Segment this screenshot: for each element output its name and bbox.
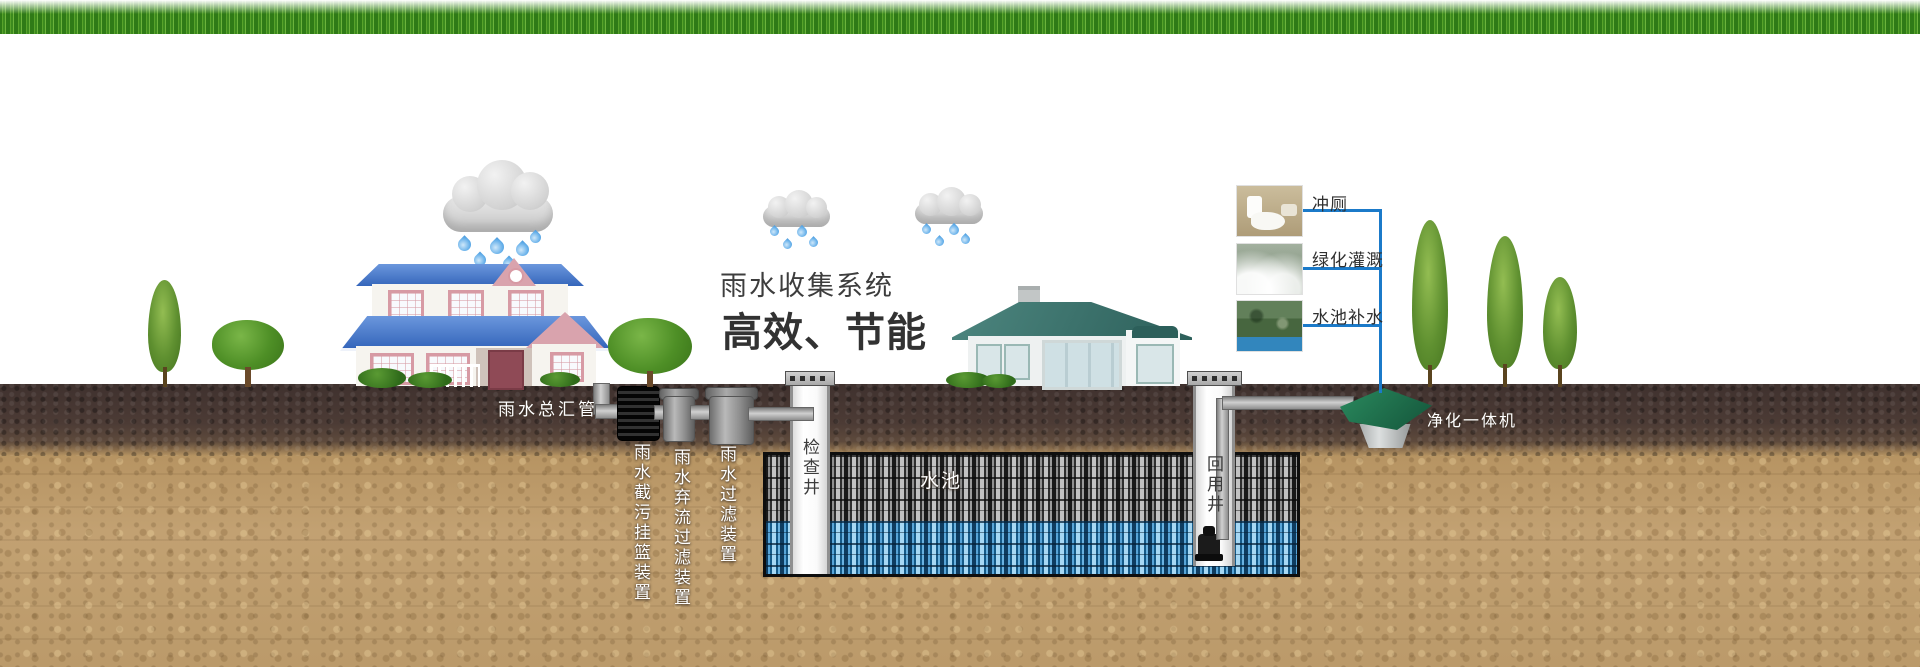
use-label-irrigation: 绿化灌溉 (1312, 246, 1384, 271)
poplar-tree (1412, 220, 1448, 387)
diversion-filter-label: 雨水弃流过滤装置 (668, 448, 693, 608)
bay-awning (1132, 326, 1178, 338)
reuse-well-label: 回用井 (1201, 455, 1226, 515)
grass-strip (0, 0, 1920, 34)
raindrop (959, 233, 972, 246)
intercept-basket-label: 雨水截污挂篮装置 (628, 443, 653, 603)
rainwater-collection-diagram: 雨水收集系统 高效、节能 检查井 水池 回用井 净化一体机 雨水总汇管 雨水截污… (0, 0, 1920, 667)
bush (540, 372, 580, 387)
raindrop (768, 225, 781, 238)
main-pipe-label: 雨水总汇管 (498, 395, 598, 420)
toilet-photo (1236, 185, 1303, 237)
inspection-well-label: 检查井 (797, 438, 822, 498)
raindrop (487, 237, 507, 257)
bush (982, 374, 1016, 388)
use-label-pond: 水池补水 (1312, 303, 1384, 328)
bush (358, 368, 406, 388)
soil-dark-layer (0, 384, 1920, 456)
use-label-toilet: 冲厕 (1312, 190, 1348, 215)
storage-tank-label: 水池 (920, 466, 962, 493)
pipe-to-purifier (1222, 396, 1354, 410)
purifier-label: 净化一体机 (1427, 407, 1517, 431)
front-door (488, 350, 524, 390)
raindrop (933, 235, 946, 248)
round-tree (212, 320, 284, 387)
pipe-to-inspection-well (748, 407, 814, 421)
poplar-tree (148, 280, 181, 387)
system-subtitle: 高效、节能 (722, 300, 982, 358)
raindrop (807, 236, 820, 249)
glass-doors (1042, 340, 1122, 390)
poplar-tree (1543, 277, 1577, 387)
round-tree (608, 318, 692, 387)
raindrop (781, 238, 794, 251)
raindrop (528, 230, 544, 246)
pond-photo (1236, 300, 1303, 352)
raindrop (795, 225, 809, 239)
irrigation-photo (1236, 243, 1303, 295)
raindrop (513, 240, 531, 258)
connector-line-vertical (1379, 209, 1382, 393)
inspection-well-cap (785, 371, 835, 386)
system-title: 雨水收集系统 (720, 264, 920, 303)
reuse-well-cap (1187, 371, 1242, 386)
raindrop (455, 235, 473, 253)
poplar-tree (1487, 236, 1523, 387)
bush (408, 372, 452, 388)
filter-device-label: 雨水过滤装置 (714, 445, 739, 565)
raindrop (947, 223, 961, 237)
raindrop (920, 223, 933, 236)
